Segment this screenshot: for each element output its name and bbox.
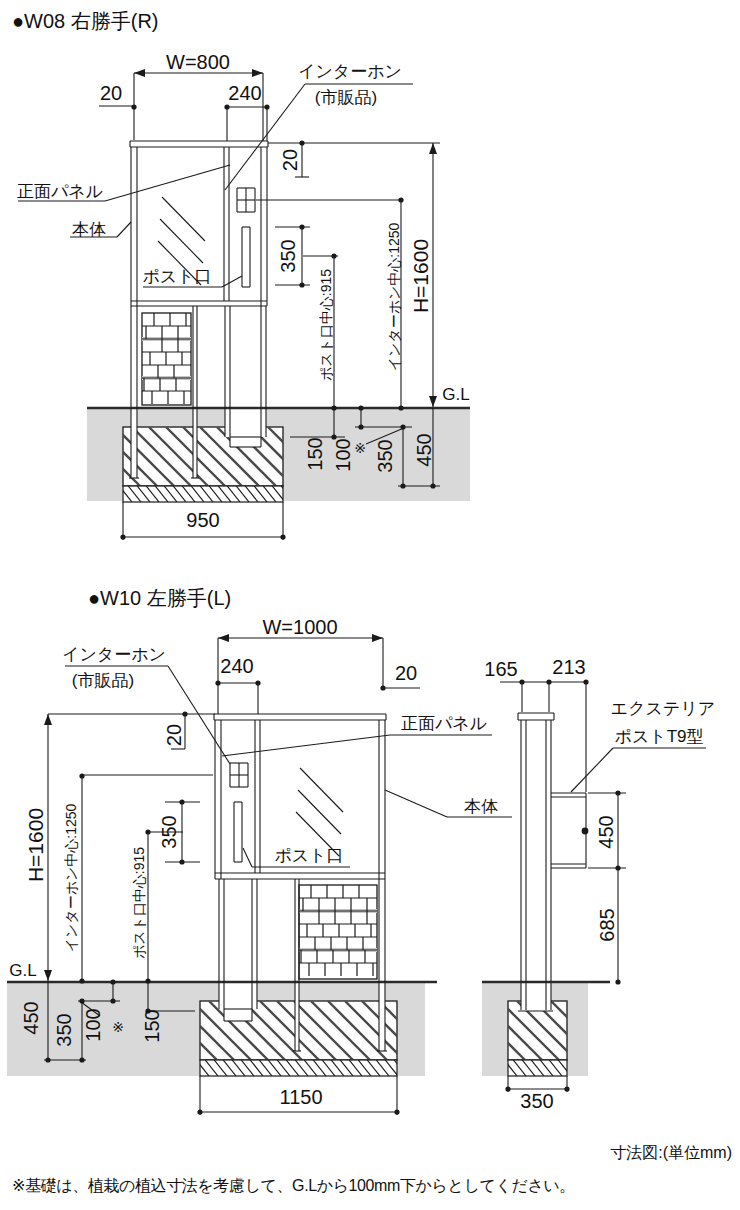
w08-dim-240: 240	[228, 83, 261, 103]
w10-dim-height: H=1600	[25, 808, 46, 882]
dimension-dot	[79, 773, 84, 778]
dimension-dot	[400, 483, 405, 488]
drawing-line	[385, 790, 447, 817]
w10-asterisk: ※	[112, 1020, 124, 1034]
w10-label-intercom-note: (市販品)	[72, 672, 134, 689]
post-embedded	[131, 409, 137, 478]
dimension-dot	[299, 224, 304, 229]
w08-label-intercom-note: (市販品)	[315, 89, 377, 106]
side-label-exterior-post-1: エクステリア	[611, 700, 715, 717]
post-embedded	[224, 983, 252, 1021]
dimension-arrow	[44, 714, 52, 725]
post-embedded	[219, 983, 224, 1009]
dimension-arrow	[134, 69, 145, 77]
dimension-dot	[145, 978, 150, 983]
w08-ground-level-label: G.L	[442, 386, 469, 403]
w10-dim-100: 100	[83, 1008, 103, 1041]
w10-ground-level-label: G.L	[9, 962, 36, 979]
dimension-dot	[564, 1086, 569, 1091]
w08-dim-350-foundation: 350	[375, 439, 395, 472]
w08-dim-100: 100	[333, 438, 353, 471]
dimension-arrow	[429, 143, 437, 154]
figure-title-w10: ●W10 左勝手(L)	[88, 585, 231, 612]
side-dim-450: 450	[596, 815, 616, 848]
dimension-diagram-page: ●W08 右勝手(R) W=800 20 240 20 350 ポスト口中心:9…	[0, 0, 740, 1210]
figure-title-w08: ●W08 右勝手(R)	[12, 8, 159, 35]
w08-dim-intercom-center-1250: インターホン中心:1250	[387, 223, 401, 372]
dimension-dot	[505, 1086, 510, 1091]
drawing-line	[571, 748, 613, 792]
w10-dim-240: 240	[220, 656, 253, 676]
w08-label-post-slot: ポスト口	[142, 268, 211, 285]
dimension-dot	[546, 679, 551, 684]
dimension-dot	[79, 998, 84, 1003]
dimension-dot	[331, 253, 336, 258]
w10-dim-right-20: 20	[395, 663, 417, 683]
post-lock-knob	[582, 828, 589, 835]
w08-dim-post-center-915: ポスト口中心:915	[319, 269, 333, 381]
dimension-arrow	[44, 970, 52, 981]
side-label-exterior-post-2: ポストT9型	[614, 728, 703, 745]
drawing-line	[298, 790, 341, 834]
w10-label-post-slot: ポスト口	[274, 847, 343, 864]
dimension-dot	[358, 405, 363, 410]
dimension-dot	[179, 859, 184, 864]
w10-dim-slot-350: 350	[159, 815, 179, 848]
w08-asterisk: ※	[354, 441, 366, 455]
dimension-dot	[394, 1109, 399, 1114]
dimension-dot	[615, 865, 620, 870]
dimension-dot	[79, 1057, 84, 1062]
dimension-arrow	[429, 396, 437, 407]
post-embedded	[193, 409, 197, 478]
dimension-dot	[398, 405, 403, 410]
dimension-dot	[400, 424, 405, 429]
dimension-dot	[110, 979, 115, 984]
drawing-line	[222, 735, 390, 756]
drawing-line	[222, 276, 242, 287]
w08-dim-left-20: 20	[100, 83, 122, 103]
dimension-dot	[224, 104, 229, 109]
dimension-dot	[299, 140, 304, 145]
dimension-dot	[215, 680, 220, 685]
dimension-dot	[45, 1057, 50, 1062]
dimension-dot	[380, 685, 385, 690]
dimension-dot	[264, 104, 269, 109]
dimension-dot	[197, 1109, 202, 1114]
dimension-dot	[120, 534, 125, 539]
w10-dim-base-1150: 1150	[279, 1087, 322, 1107]
w10-label-intercom: インターホン	[62, 646, 166, 663]
w08-dim-150: 150	[305, 437, 325, 470]
dimension-dot	[583, 679, 588, 684]
dimension-dot	[519, 679, 524, 684]
w10-dim-350-foundation: 350	[54, 1013, 74, 1046]
dimension-dot	[280, 534, 285, 539]
dimension-arrow	[252, 69, 263, 77]
post-embedded	[230, 409, 261, 447]
w08-dim-top-20: 20	[280, 149, 300, 171]
w10-dim-width: W=1000	[262, 617, 337, 637]
w10-dim-intercom-center-1250: インターホン中心:1250	[64, 804, 78, 953]
drawing-unit-caption: 寸法図:(単位mm)	[610, 1143, 732, 1164]
post-embedded	[225, 409, 230, 437]
w10-dim-450: 450	[21, 1001, 41, 1034]
dimension-dot	[79, 978, 84, 983]
side-dim-165: 165	[484, 659, 517, 679]
w08-dim-width: W=800	[166, 52, 230, 72]
w08-label-body: 本体	[72, 221, 106, 238]
w08-dim-450: 450	[414, 433, 434, 466]
lattice-screen	[299, 885, 377, 979]
w08-dim-base-950: 950	[186, 510, 219, 530]
dimension-arrow	[372, 634, 383, 642]
dimension-dot	[398, 197, 403, 202]
w08-dim-slot-350: 350	[278, 239, 298, 272]
drawing-line	[162, 197, 205, 241]
dimension-dot	[255, 680, 260, 685]
dimension-dot	[145, 829, 150, 834]
post-embedded	[261, 409, 266, 437]
dimension-arrow	[218, 634, 229, 642]
w08-label-front-panel: 正面パネル	[17, 183, 103, 200]
drawing-line	[160, 219, 203, 263]
dimension-dot	[299, 282, 304, 287]
dimension-dot	[331, 405, 336, 410]
dimension-dot	[182, 711, 187, 716]
dimension-dot	[615, 790, 620, 795]
side-dim-213: 213	[552, 657, 585, 677]
dimension-dot	[615, 979, 620, 984]
post-embedded	[295, 983, 299, 1051]
post-embedded	[379, 983, 385, 1051]
drawing-line	[300, 768, 343, 812]
dimension-dot	[131, 104, 136, 109]
w10-dim-top-20: 20	[164, 724, 184, 746]
dimension-dot	[430, 483, 435, 488]
w10-label-body: 本体	[464, 798, 498, 815]
w10-label-front-panel: 正面パネル	[401, 715, 487, 732]
drawing-line	[105, 165, 230, 201]
w08-label-intercom: インターホン	[298, 63, 402, 80]
post-embedded	[252, 983, 257, 1009]
side-dim-base-350: 350	[520, 1091, 553, 1111]
dimension-dot	[179, 799, 184, 804]
foundation-note: ※基礎は、植栽の植込寸法を考慮して、G.Lから100mm下からとしてください。	[12, 1176, 575, 1197]
drawing-line	[117, 222, 131, 237]
drawing-line	[243, 848, 252, 867]
w08-dim-height: H=1600	[410, 239, 431, 313]
side-dim-685: 685	[597, 908, 617, 941]
dimension-dot	[110, 998, 115, 1003]
w10-dim-post-center-915: ポスト口中心:915	[132, 847, 146, 959]
w10-dim-150: 150	[142, 1009, 162, 1042]
gravel-course	[123, 486, 283, 502]
dimension-dot	[358, 424, 363, 429]
